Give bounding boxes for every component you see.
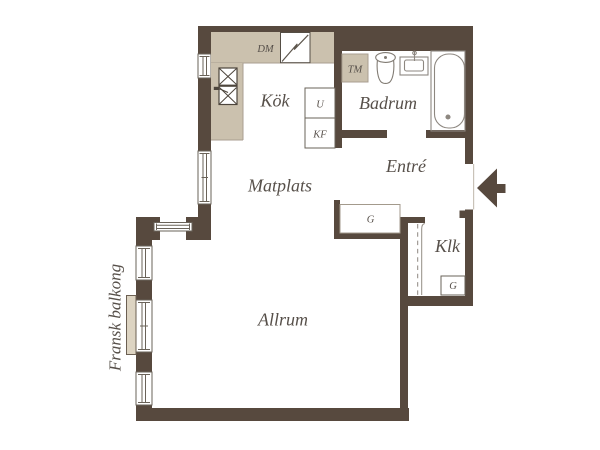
svg-text:KF: KF [312,130,327,141]
svg-text:Fransk balkong: Fransk balkong [106,264,125,372]
svg-text:G: G [367,215,375,226]
svg-text:Matplats: Matplats [247,176,312,196]
svg-text:Entré: Entré [385,156,427,176]
svg-text:Klk: Klk [434,236,461,256]
svg-text:G: G [449,281,457,292]
svg-text:TM: TM [348,65,364,76]
svg-text:Allrum: Allrum [257,310,308,330]
svg-text:DM: DM [256,44,275,55]
svg-text:Badrum: Badrum [359,93,417,113]
svg-text:Kök: Kök [260,91,291,111]
